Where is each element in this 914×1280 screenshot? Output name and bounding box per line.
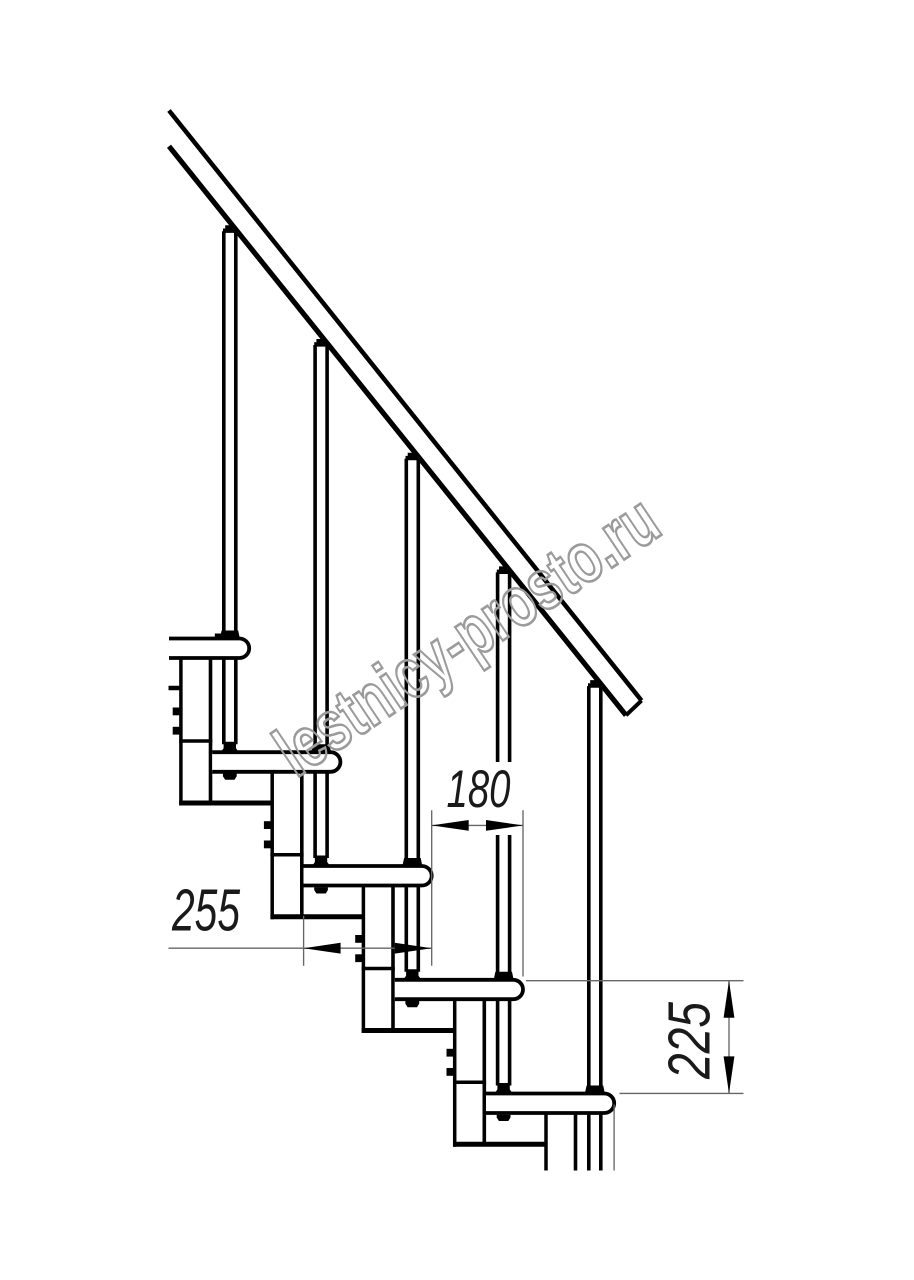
svg-text:255: 255 (171, 878, 240, 944)
svg-text:180: 180 (447, 760, 511, 819)
svg-text:225: 225 (657, 1002, 723, 1080)
